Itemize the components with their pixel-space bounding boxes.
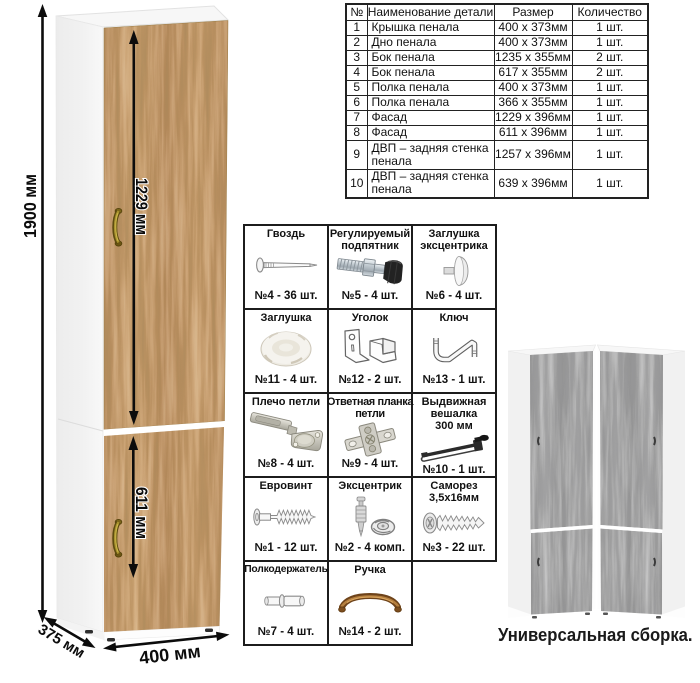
svg-text:400 мм: 400 мм <box>138 641 202 668</box>
svg-text:1900 мм: 1900 мм <box>20 174 40 238</box>
svg-text:1229 мм: 1229 мм <box>132 178 150 235</box>
svg-text:611 мм: 611 мм <box>132 487 150 539</box>
